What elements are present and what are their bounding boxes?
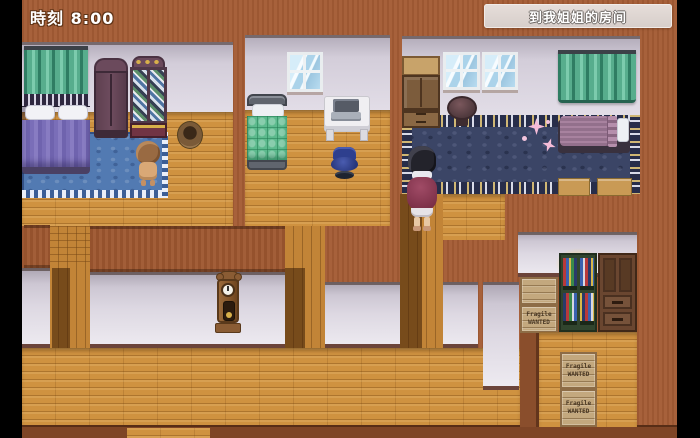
drawer-handle bbox=[416, 121, 426, 123]
crate-label: WANTED bbox=[568, 408, 590, 416]
hall-wall bbox=[22, 268, 50, 348]
player-dress bbox=[407, 177, 437, 211]
bed-blanket bbox=[560, 116, 610, 146]
storage-cabinet bbox=[598, 253, 637, 332]
bed-foot-frame bbox=[247, 160, 287, 170]
crate-label: Fragile bbox=[566, 363, 591, 371]
window bbox=[482, 52, 518, 90]
books-row bbox=[580, 293, 594, 325]
hall-wall-column bbox=[483, 282, 519, 390]
crate-label: Fragile bbox=[526, 311, 551, 319]
game-screen: Fragile WANTED Fragile WANTED Fragile WA… bbox=[0, 0, 700, 438]
crate: Fragile WANTED bbox=[520, 305, 558, 333]
corridor-steps bbox=[50, 226, 90, 268]
npc-child bbox=[136, 141, 160, 189]
cabinet-door bbox=[619, 258, 632, 292]
bed-ruffle bbox=[608, 116, 617, 147]
curtain-right-room bbox=[558, 50, 636, 103]
player-character bbox=[408, 146, 436, 232]
desk-leg bbox=[360, 129, 368, 141]
chair-base bbox=[335, 171, 354, 179]
drawer-handle bbox=[612, 301, 623, 304]
wall-block bbox=[24, 225, 50, 268]
carpet-lace-border bbox=[162, 132, 168, 198]
player-foot bbox=[413, 226, 421, 231]
hall-wall bbox=[325, 282, 400, 348]
doorway-threshold bbox=[558, 178, 590, 196]
window bbox=[443, 52, 480, 90]
wardrobe-top-shelf bbox=[402, 56, 440, 76]
chair-seat bbox=[331, 157, 358, 171]
storage-wall-shadow bbox=[520, 333, 539, 427]
display-cabinet bbox=[130, 56, 167, 138]
doorway-threshold bbox=[597, 178, 632, 196]
wood-wardrobe bbox=[402, 56, 440, 128]
npc-body bbox=[139, 162, 157, 180]
player-hair bbox=[408, 146, 436, 173]
crate: Fragile WANTED bbox=[560, 389, 597, 427]
wall-block bbox=[90, 226, 285, 272]
sparkle-icon bbox=[546, 120, 550, 124]
bed-blanket bbox=[22, 120, 90, 168]
right-room-floor-south bbox=[433, 194, 505, 240]
npc-hair bbox=[136, 141, 160, 164]
desk-leg bbox=[326, 129, 334, 141]
wardrobe-arch bbox=[94, 58, 128, 72]
game-viewport[interactable]: Fragile WANTED Fragile WANTED Fragile WA… bbox=[22, 0, 677, 438]
grandfather-clock bbox=[215, 271, 241, 333]
bed-pillow bbox=[58, 105, 88, 120]
carpet-lace-border bbox=[22, 190, 168, 198]
hallway-floor bbox=[22, 348, 520, 425]
drawer-handle bbox=[612, 318, 623, 321]
office-chair bbox=[331, 147, 358, 179]
wardrobe-door-seam bbox=[110, 74, 112, 126]
clock-face bbox=[221, 283, 235, 297]
corridor-shadow bbox=[52, 268, 70, 348]
time-display: 時刻 8:00 bbox=[30, 5, 114, 29]
books-row bbox=[580, 258, 594, 290]
bottom-door-gap bbox=[127, 428, 210, 438]
bed-blanket bbox=[247, 116, 287, 160]
crate-label: WANTED bbox=[568, 371, 590, 379]
basket bbox=[177, 121, 203, 149]
wardrobe-door-seam bbox=[420, 78, 422, 107]
letterbox-left bbox=[0, 0, 22, 438]
clock-base bbox=[215, 323, 241, 333]
books-row bbox=[563, 258, 577, 290]
crate: Fragile WANTED bbox=[560, 352, 597, 389]
cabinet-base bbox=[130, 123, 167, 138]
mauve-bed bbox=[558, 116, 630, 153]
bed-pillow bbox=[617, 118, 629, 142]
quest-text: 到我姐姐的房间 bbox=[529, 7, 627, 26]
wardrobe-drawers bbox=[402, 109, 440, 128]
bed-footer bbox=[22, 167, 90, 174]
bookshelf bbox=[559, 253, 597, 332]
books-row bbox=[563, 293, 577, 325]
npc-feet bbox=[150, 180, 155, 186]
crate-label: Fragile bbox=[566, 400, 591, 408]
crate-label: WANTED bbox=[528, 319, 550, 327]
hall-wall bbox=[90, 272, 285, 348]
player-foot bbox=[423, 226, 431, 231]
clock-pendulum-window bbox=[223, 301, 235, 321]
drawer-handle bbox=[416, 113, 426, 115]
laptop-icon bbox=[333, 99, 359, 112]
table-top bbox=[447, 96, 477, 120]
green-bed bbox=[247, 94, 287, 172]
laptop-keyboard bbox=[331, 112, 361, 121]
round-table bbox=[447, 96, 477, 128]
time-label: 時刻 8:00 bbox=[30, 9, 114, 28]
hall-wall bbox=[443, 282, 478, 348]
window bbox=[287, 52, 323, 92]
npc-feet bbox=[141, 180, 146, 186]
corridor-shadow bbox=[285, 268, 305, 348]
purple-bed bbox=[22, 94, 90, 174]
player-hem bbox=[411, 208, 433, 217]
sparkle-icon bbox=[522, 136, 527, 141]
bed-pillow bbox=[25, 105, 55, 120]
computer-desk bbox=[324, 96, 368, 140]
wardrobe-base bbox=[94, 131, 128, 138]
wardrobe-dark bbox=[94, 58, 128, 138]
letterbox-right bbox=[677, 0, 700, 438]
cabinet-door bbox=[603, 258, 616, 292]
crate bbox=[520, 277, 558, 305]
cabinet-glass-seam bbox=[147, 70, 150, 121]
quest-banner: 到我姐姐的房间 bbox=[484, 4, 672, 28]
